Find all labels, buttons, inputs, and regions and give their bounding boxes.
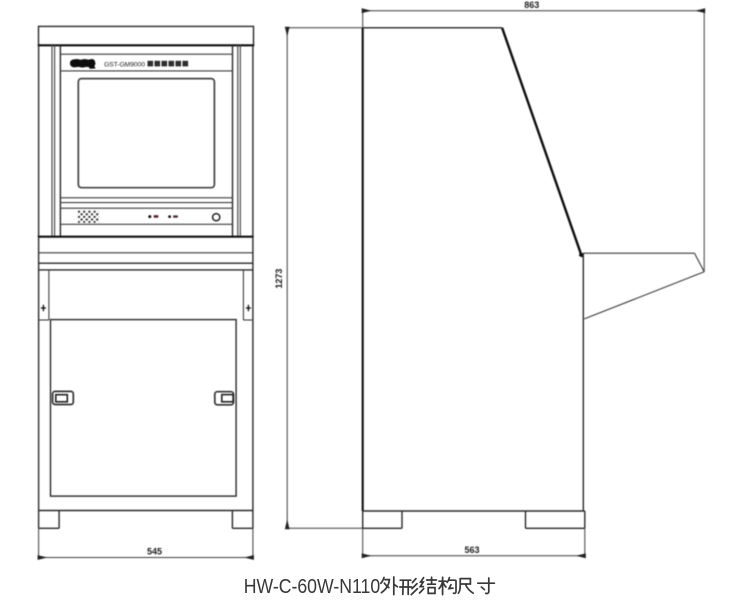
svg-text:545: 545 — [147, 547, 162, 557]
svg-text:863: 863 — [524, 0, 539, 10]
svg-text:1273: 1273 — [274, 269, 284, 289]
svg-text:563: 563 — [464, 545, 479, 555]
svg-text:HW-C-60W-N110: HW-C-60W-N110 — [244, 575, 381, 598]
svg-text:GST-GM9000: GST-GM9000 — [104, 61, 145, 68]
